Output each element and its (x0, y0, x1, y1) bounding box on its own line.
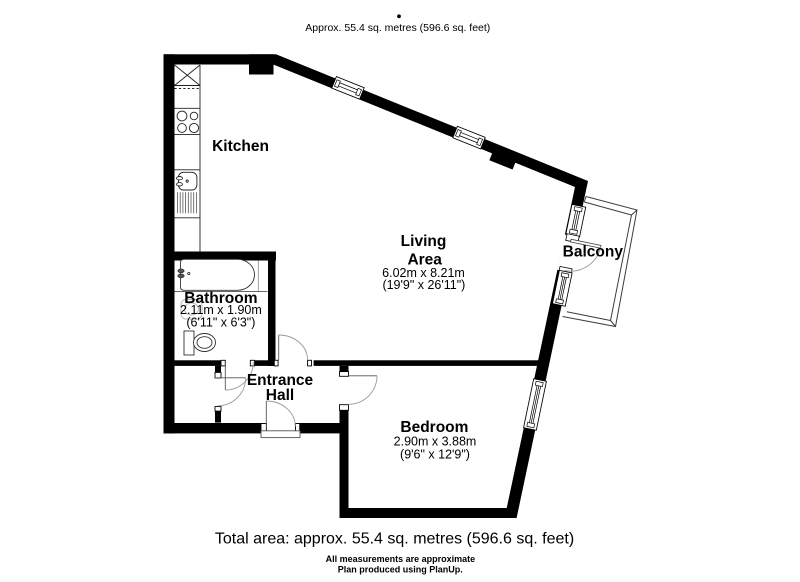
svg-text:Plan produced using PlanUp.: Plan produced using PlanUp. (338, 565, 463, 575)
svg-text:2.90m x 3.88m: 2.90m x 3.88m (394, 435, 477, 449)
svg-text:Approx. 55.4 sq. metres (596.6: Approx. 55.4 sq. metres (596.6 sq. feet) (305, 22, 490, 34)
svg-text:(9'6" x 12'9"): (9'6" x 12'9") (400, 448, 470, 462)
svg-text:Kitchen: Kitchen (212, 138, 269, 155)
svg-text:(6'11" x 6'3"): (6'11" x 6'3") (186, 316, 255, 330)
svg-text:All measurements are approxima: All measurements are approximate (326, 554, 476, 564)
svg-text:Living: Living (401, 233, 447, 250)
svg-text:Total area: approx. 55.4 sq. m: Total area: approx. 55.4 sq. metres (596… (215, 530, 574, 547)
svg-text:Balcony: Balcony (563, 243, 624, 260)
svg-text:Hall: Hall (266, 387, 294, 404)
svg-text:(19'9" x 26'11"): (19'9" x 26'11") (382, 278, 465, 292)
svg-text:Bedroom: Bedroom (400, 419, 468, 436)
